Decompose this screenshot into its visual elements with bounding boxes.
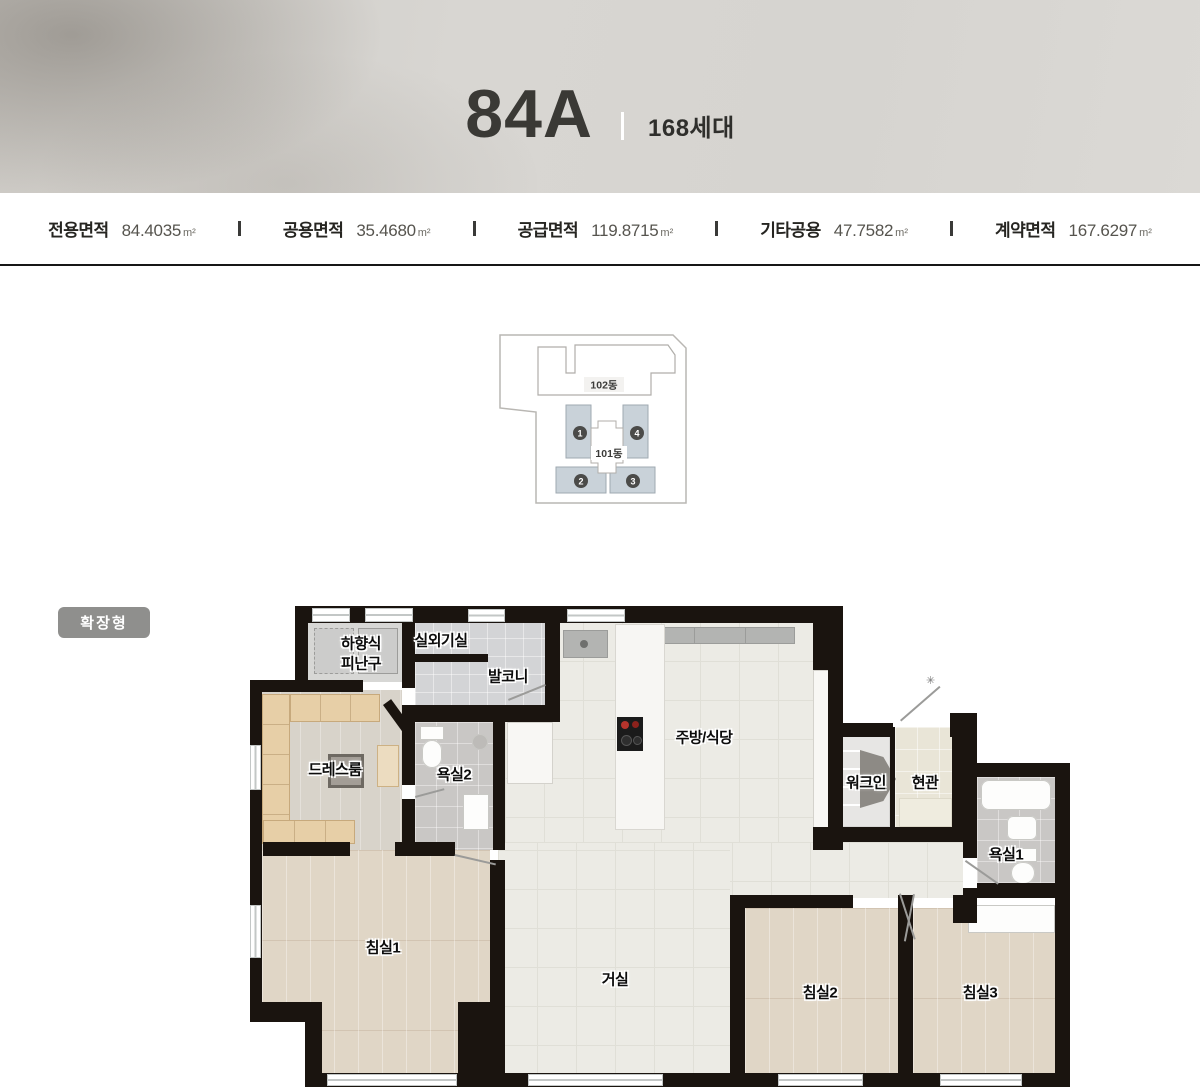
wall: [402, 705, 560, 722]
room-label-line: 하향식: [341, 636, 381, 653]
window: [250, 745, 261, 790]
title-divider: [621, 112, 624, 140]
washbasin: [463, 794, 489, 830]
shower-head: [472, 734, 488, 750]
window: [365, 608, 413, 622]
toilet: [1011, 862, 1035, 884]
washbasin: [1007, 816, 1037, 840]
area-item-contract: 계약면적 167.6297 m²: [995, 216, 1152, 241]
room-label-living: 거실: [602, 970, 629, 990]
area-label: 기타공용: [760, 216, 821, 241]
living-floor: [498, 850, 730, 1087]
wall: [395, 842, 455, 856]
area-label: 공용면적: [283, 216, 344, 241]
room-label-escape-hatch: 하향식 피난구: [341, 635, 381, 674]
dress-cabinet-bottom: [263, 820, 355, 844]
room-label-bedroom3: 침실3: [963, 983, 997, 1003]
unit-count-label: 168세대: [648, 108, 735, 143]
area-value: 167.6297: [1069, 221, 1138, 241]
room-label-kitchen: 주방/식당: [676, 728, 733, 748]
room-label-bedroom2: 침실2: [803, 983, 837, 1003]
wall: [953, 895, 977, 923]
room-label-bathroom2: 욕실2: [437, 765, 471, 785]
room-label-line: 피난구: [341, 655, 381, 672]
wall: [843, 723, 893, 737]
kitchen-pantry-run: [813, 670, 829, 828]
expansion-type-badge[interactable]: 확장형: [58, 607, 150, 638]
page-title: 84A: [465, 80, 593, 148]
wall: [493, 722, 505, 850]
wall: [828, 668, 843, 830]
window: [250, 905, 261, 958]
wall: [250, 680, 363, 692]
area-value: 119.8715: [591, 221, 658, 241]
unit-2-number: 2: [578, 477, 583, 487]
room-label-walkin: 워크인: [846, 773, 886, 793]
toilet: [420, 726, 444, 740]
area-label: 계약면적: [995, 216, 1056, 241]
area-label: 전용면적: [48, 216, 109, 241]
wall: [952, 727, 963, 827]
area-item-common: 공용면적 35.4680 m²: [283, 216, 431, 241]
wall: [250, 1002, 322, 1022]
wall: [458, 1002, 505, 1087]
wall: [490, 860, 505, 1002]
area-item-exclusive: 전용면적 84.4035 m²: [48, 216, 196, 241]
cooktop-burner: [632, 721, 639, 728]
room-label-bathroom1: 욕실1: [989, 845, 1023, 865]
area-unit: m²: [895, 227, 908, 239]
wall: [263, 842, 350, 856]
wall: [977, 883, 1055, 898]
area-divider: [950, 221, 953, 236]
building-102-label: 102동: [590, 380, 618, 392]
unit-4-number: 4: [634, 429, 639, 439]
toilet: [422, 740, 442, 768]
area-item-supply: 공급면적 119.8715 m²: [518, 216, 674, 241]
sink-faucet: [580, 640, 588, 648]
kitchen-upper-cabinet: [643, 627, 795, 644]
entrance-direction-marker: ✳: [926, 674, 935, 687]
building-101-label: 101동: [595, 448, 623, 460]
area-value: 84.4035: [122, 221, 181, 241]
unit-3-number: 3: [630, 477, 635, 487]
bathtub: [981, 780, 1051, 810]
room-label-dressroom: 드레스룸: [308, 760, 361, 780]
brochure-page: 84A 168세대 전용면적 84.4035 m² 공용면적 35.4680 m…: [0, 0, 1200, 1089]
bedroom3-closet: [968, 905, 1055, 933]
title-row: 84A 168세대: [0, 58, 1200, 148]
entrance-mat: [899, 798, 952, 827]
cooktop-burner: [621, 735, 632, 746]
floor-plan: ✳ 하향식 피난구 실외기실 발코니 드레스룸 욕실2 주방/식당 워크인 현관…: [250, 598, 1070, 1089]
window: [940, 1074, 1022, 1086]
wall: [305, 1022, 322, 1087]
cooktop-burner: [621, 721, 629, 729]
area-unit: m²: [660, 227, 673, 239]
area-info-bar: 전용면적 84.4035 m² 공용면적 35.4680 m² 공급면적 119…: [0, 193, 1200, 266]
wall: [730, 895, 853, 908]
area-label: 공급면적: [518, 216, 579, 241]
wall: [890, 727, 895, 827]
exterior-notch: [250, 1022, 305, 1087]
window: [528, 1074, 663, 1086]
dress-cabinet-top: [290, 694, 380, 722]
room-label-entrance: 현관: [912, 773, 939, 793]
room-label-balcony: 발코니: [488, 667, 528, 687]
area-item-other-common: 기타공용 47.7582 m²: [760, 216, 908, 241]
area-divider: [715, 221, 718, 236]
room-label-outdoor-unit: 실외기실: [414, 631, 467, 651]
wall: [813, 606, 843, 670]
area-value: 47.7582: [834, 221, 893, 241]
header-band: 84A 168세대: [0, 0, 1200, 193]
wall: [977, 763, 1070, 777]
area-unit: m²: [1139, 227, 1152, 239]
area-unit: m²: [183, 227, 196, 239]
area-divider: [473, 221, 476, 236]
wall: [295, 608, 308, 686]
site-plan-map: 102동 101동 1 4 2 3: [488, 330, 700, 510]
window: [327, 1074, 457, 1086]
room-label-bedroom1: 침실1: [366, 938, 400, 958]
window: [468, 609, 505, 622]
door-swing: [900, 686, 941, 722]
wall: [1055, 777, 1070, 1087]
area-divider: [238, 221, 241, 236]
wall: [813, 828, 843, 850]
wall: [963, 777, 977, 858]
window: [312, 608, 350, 622]
wall: [730, 895, 745, 1073]
area-unit: m²: [418, 227, 431, 239]
window: [567, 609, 625, 622]
dress-cabinet-right: [377, 745, 399, 787]
area-value: 35.4680: [356, 221, 415, 241]
window: [778, 1074, 863, 1086]
cooktop-burner: [633, 736, 642, 745]
unit-1-number: 1: [577, 429, 582, 439]
wall: [408, 654, 488, 662]
refrigerator-space: [507, 722, 553, 784]
wall: [963, 713, 977, 777]
